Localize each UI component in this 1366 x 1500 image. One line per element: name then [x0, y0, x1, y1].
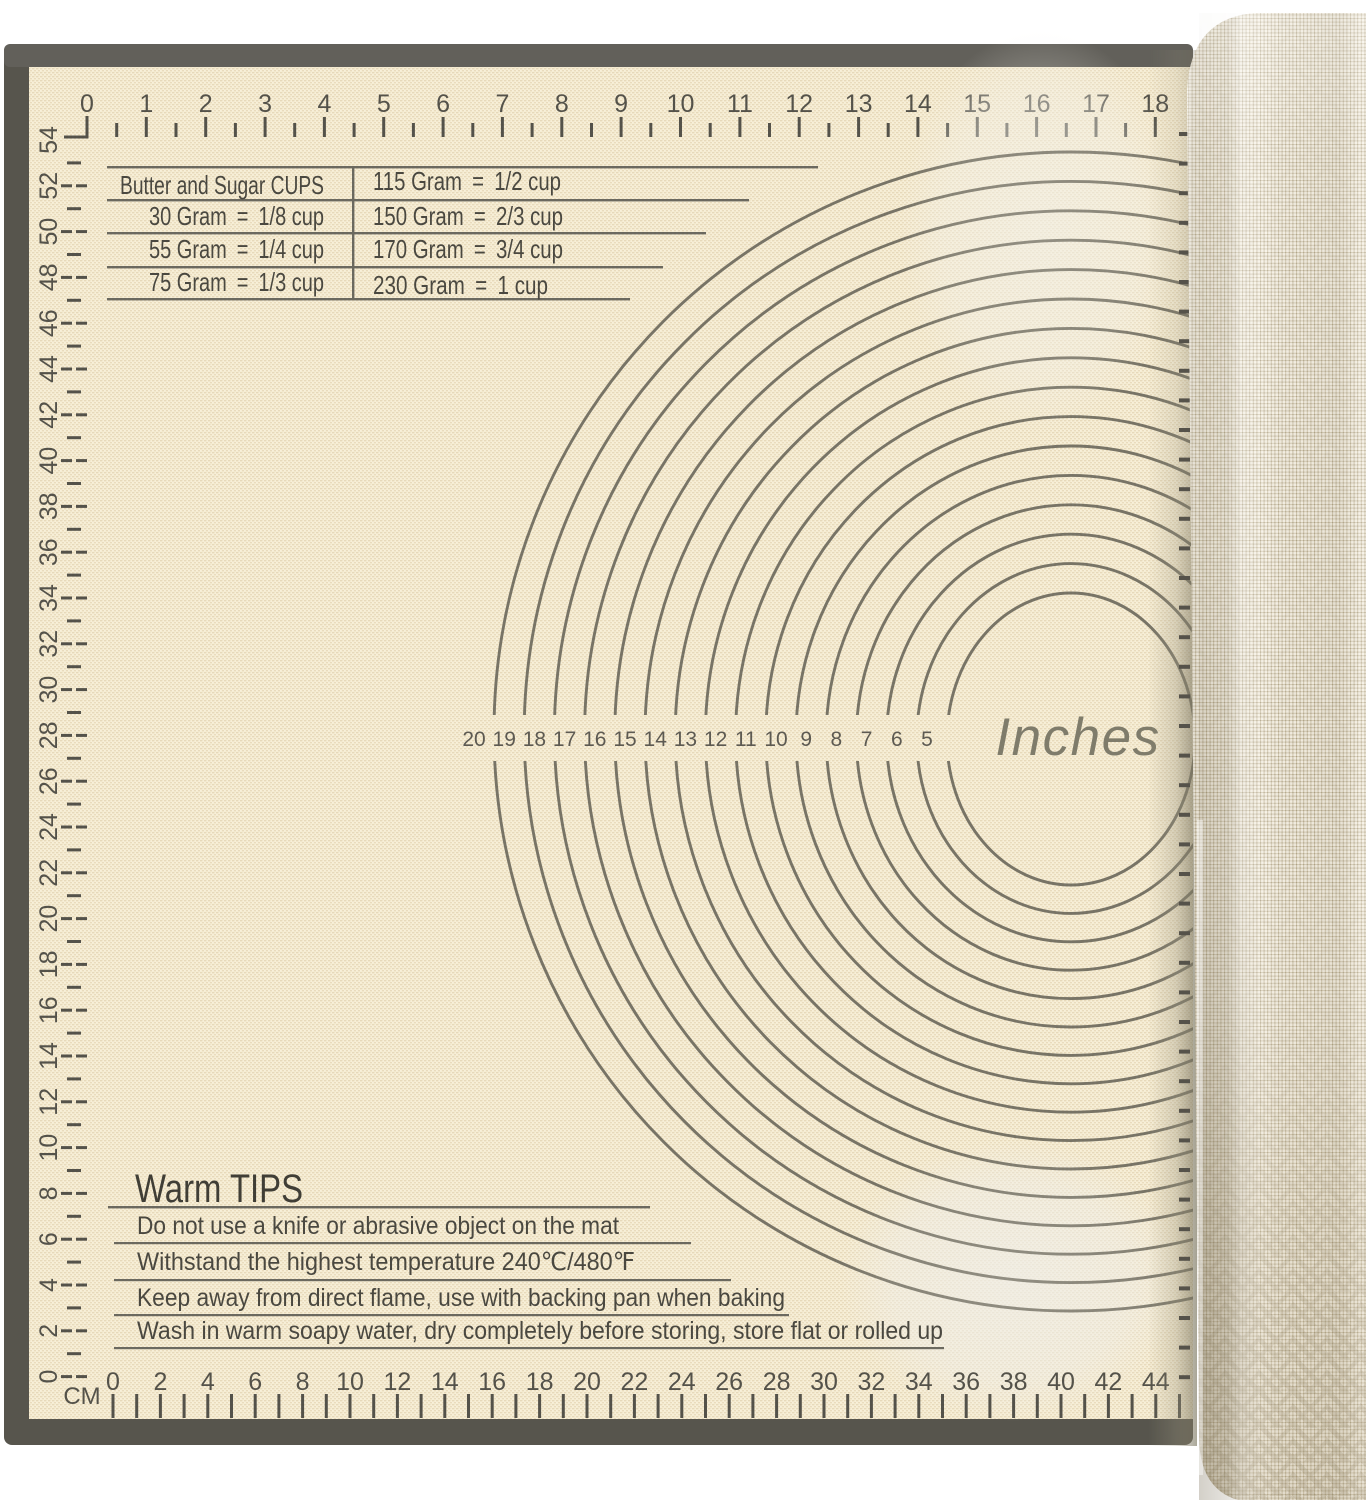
svg-text:50: 50 — [35, 218, 63, 246]
svg-text:13: 13 — [845, 90, 873, 118]
svg-text:8: 8 — [831, 728, 843, 751]
svg-text:10: 10 — [336, 1368, 364, 1396]
svg-text:8: 8 — [296, 1368, 310, 1396]
svg-text:5: 5 — [921, 728, 933, 751]
svg-text:14: 14 — [431, 1368, 459, 1396]
svg-text:46: 46 — [35, 309, 63, 337]
svg-text:11: 11 — [727, 90, 753, 118]
svg-text:15: 15 — [613, 728, 636, 751]
svg-text:7: 7 — [861, 728, 873, 751]
svg-text:12: 12 — [704, 728, 727, 751]
svg-text:18: 18 — [523, 728, 546, 751]
svg-text:16: 16 — [35, 996, 63, 1024]
svg-text:2: 2 — [153, 1368, 167, 1396]
svg-text:19: 19 — [493, 728, 516, 751]
svg-text:38: 38 — [35, 492, 63, 520]
svg-text:6: 6 — [891, 728, 903, 751]
svg-text:42: 42 — [1094, 1368, 1122, 1396]
svg-text:1: 1 — [139, 90, 153, 118]
svg-text:24: 24 — [35, 813, 63, 841]
svg-text:75 Gram = 1/3 cup: 75 Gram = 1/3 cup — [149, 267, 324, 297]
svg-text:12: 12 — [35, 1088, 63, 1116]
svg-text:40: 40 — [35, 447, 63, 475]
svg-text:42: 42 — [35, 401, 63, 429]
svg-text:12: 12 — [383, 1368, 411, 1396]
svg-text:9: 9 — [614, 90, 628, 118]
svg-text:Keep away from direct flame, u: Keep away from direct flame, use with ba… — [137, 1284, 785, 1312]
svg-text:20: 20 — [35, 905, 63, 933]
svg-text:28: 28 — [35, 721, 63, 749]
svg-text:115 Gram = 1/2 cup: 115 Gram = 1/2 cup — [373, 166, 561, 196]
svg-text:8: 8 — [35, 1186, 63, 1200]
svg-text:30 Gram = 1/8 cup: 30 Gram = 1/8 cup — [149, 201, 324, 231]
svg-text:26: 26 — [35, 767, 63, 795]
svg-text:5: 5 — [377, 90, 391, 118]
svg-text:11: 11 — [735, 728, 757, 751]
svg-text:38: 38 — [1000, 1368, 1028, 1396]
svg-text:17: 17 — [553, 728, 576, 751]
svg-text:10: 10 — [764, 728, 787, 751]
svg-text:16: 16 — [478, 1368, 506, 1396]
svg-text:55 Gram = 1/4 cup: 55 Gram = 1/4 cup — [149, 234, 324, 264]
svg-text:2: 2 — [199, 90, 213, 118]
svg-text:2: 2 — [35, 1324, 63, 1338]
svg-text:4: 4 — [317, 90, 331, 118]
svg-text:Wash in warm soapy water, dry: Wash in warm soapy water, dry completely… — [137, 1317, 943, 1345]
svg-text:30: 30 — [810, 1368, 838, 1396]
svg-text:24: 24 — [668, 1368, 696, 1396]
svg-text:Do not use a knife or abrasive: Do not use a knife or abrasive object on… — [137, 1212, 619, 1240]
svg-text:14: 14 — [644, 728, 668, 751]
svg-text:13: 13 — [674, 728, 697, 751]
svg-text:48: 48 — [35, 263, 63, 291]
svg-text:22: 22 — [35, 859, 63, 887]
svg-text:36: 36 — [952, 1368, 980, 1396]
svg-text:28: 28 — [763, 1368, 791, 1396]
svg-text:8: 8 — [555, 90, 569, 118]
svg-text:52: 52 — [35, 172, 63, 200]
svg-text:10: 10 — [35, 1134, 63, 1162]
svg-text:Inches: Inches — [995, 708, 1160, 767]
svg-text:54: 54 — [35, 126, 63, 154]
svg-text:26: 26 — [715, 1368, 743, 1396]
svg-text:230 Gram = 1 cup: 230 Gram = 1 cup — [373, 270, 548, 300]
svg-text:9: 9 — [800, 728, 812, 751]
svg-text:34: 34 — [35, 584, 63, 612]
svg-text:6: 6 — [35, 1232, 63, 1246]
svg-text:22: 22 — [620, 1368, 648, 1396]
svg-text:Butter and Sugar CUPS: Butter and Sugar CUPS — [120, 170, 324, 200]
svg-text:20: 20 — [573, 1368, 601, 1396]
svg-text:Warm TIPS: Warm TIPS — [135, 1167, 303, 1211]
svg-text:32: 32 — [35, 630, 63, 658]
svg-text:32: 32 — [857, 1368, 885, 1396]
svg-text:20: 20 — [462, 728, 485, 751]
svg-text:0: 0 — [80, 90, 94, 118]
svg-text:16: 16 — [583, 728, 606, 751]
svg-text:150 Gram = 2/3 cup: 150 Gram = 2/3 cup — [373, 201, 563, 231]
svg-text:12: 12 — [785, 90, 813, 118]
svg-text:0: 0 — [35, 1370, 63, 1384]
svg-text:3: 3 — [258, 90, 272, 118]
svg-text:0: 0 — [106, 1368, 120, 1396]
svg-text:4: 4 — [201, 1368, 215, 1396]
svg-text:44: 44 — [35, 355, 63, 383]
svg-text:18: 18 — [526, 1368, 554, 1396]
svg-text:7: 7 — [495, 90, 509, 118]
svg-text:6: 6 — [436, 90, 450, 118]
svg-text:CM: CM — [63, 1383, 100, 1410]
svg-text:36: 36 — [35, 538, 63, 566]
svg-text:18: 18 — [35, 950, 63, 978]
svg-text:40: 40 — [1047, 1368, 1075, 1396]
svg-text:Withstand the highest temperat: Withstand the highest temperature 240℃/4… — [137, 1248, 635, 1276]
svg-text:6: 6 — [248, 1368, 262, 1396]
svg-text:30: 30 — [35, 676, 63, 704]
svg-text:10: 10 — [667, 90, 695, 118]
svg-text:34: 34 — [905, 1368, 933, 1396]
svg-text:4: 4 — [35, 1278, 63, 1292]
svg-text:14: 14 — [35, 1042, 63, 1070]
svg-text:170 Gram = 3/4 cup: 170 Gram = 3/4 cup — [373, 234, 563, 264]
